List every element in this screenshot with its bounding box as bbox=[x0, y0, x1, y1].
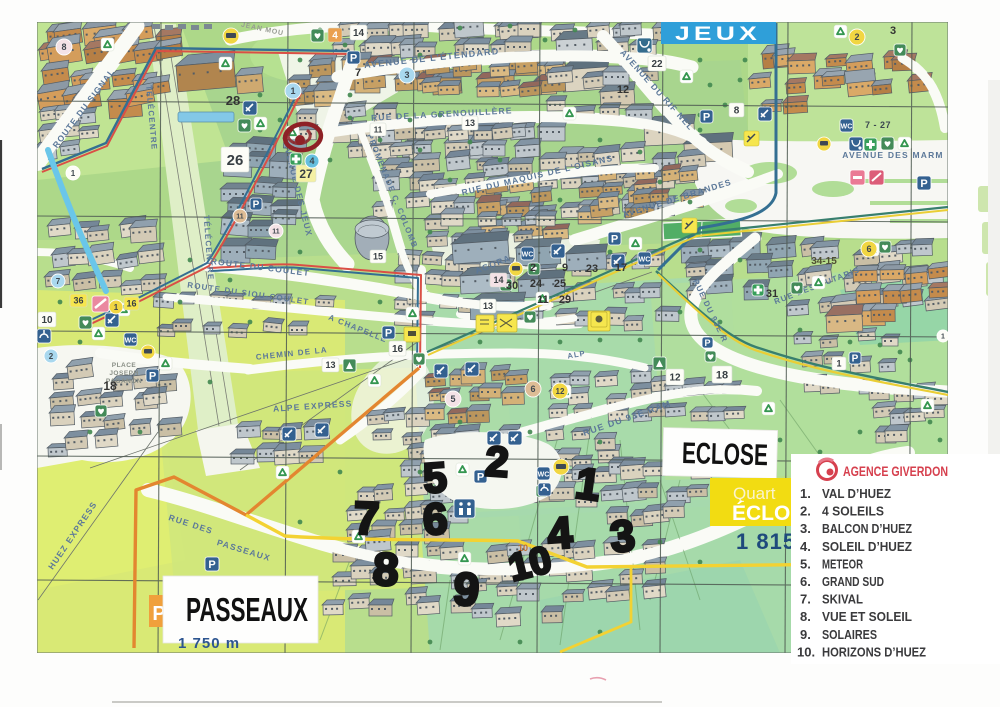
svg-text:AGENCE GIVERDON: AGENCE GIVERDON bbox=[843, 463, 948, 479]
svg-text:9: 9 bbox=[451, 562, 481, 616]
svg-text:PASSEAUX: PASSEAUX bbox=[186, 591, 308, 628]
svg-text:10.: 10. bbox=[797, 644, 815, 659]
svg-text:8.: 8. bbox=[800, 609, 811, 624]
svg-text:6.: 6. bbox=[800, 574, 811, 589]
svg-text:8: 8 bbox=[372, 542, 400, 595]
svg-text:7.: 7. bbox=[800, 592, 811, 607]
svg-text:5.: 5. bbox=[800, 556, 811, 571]
svg-text:1 815: 1 815 bbox=[736, 529, 796, 554]
svg-text:6: 6 bbox=[422, 494, 449, 544]
svg-text:METEOR: METEOR bbox=[822, 556, 863, 571]
svg-text:VUE ET SOLEIL: VUE ET SOLEIL bbox=[822, 609, 912, 624]
svg-text:4 SOLEILS: 4 SOLEILS bbox=[822, 504, 884, 519]
svg-text:SOLAIRES: SOLAIRES bbox=[822, 627, 877, 642]
svg-text:4.: 4. bbox=[800, 539, 811, 554]
svg-text:2.: 2. bbox=[800, 504, 811, 519]
svg-text:7: 7 bbox=[353, 492, 380, 545]
svg-text:GRAND SUD: GRAND SUD bbox=[822, 574, 884, 589]
svg-text:9.: 9. bbox=[800, 627, 811, 642]
svg-text:3.: 3. bbox=[800, 521, 811, 536]
svg-text:3: 3 bbox=[608, 511, 637, 562]
svg-text:JEUX: JEUX bbox=[675, 24, 761, 45]
svg-text:SOLEIL D’HUEZ: SOLEIL D’HUEZ bbox=[822, 539, 912, 554]
svg-text:1.: 1. bbox=[800, 486, 811, 501]
svg-text:ECLOSE: ECLOSE bbox=[682, 437, 769, 472]
svg-text:Quart: Quart bbox=[733, 484, 776, 503]
svg-text:VAL D’HUEZ: VAL D’HUEZ bbox=[822, 486, 891, 501]
svg-text:HORIZONS D’HUEZ: HORIZONS D’HUEZ bbox=[822, 644, 926, 659]
svg-text:1 750 m: 1 750 m bbox=[178, 635, 240, 652]
svg-text:2: 2 bbox=[484, 437, 511, 486]
svg-text:SKIVAL: SKIVAL bbox=[822, 592, 863, 607]
svg-text:BALCON D’HUEZ: BALCON D’HUEZ bbox=[822, 521, 912, 536]
svg-text:4: 4 bbox=[546, 508, 574, 559]
